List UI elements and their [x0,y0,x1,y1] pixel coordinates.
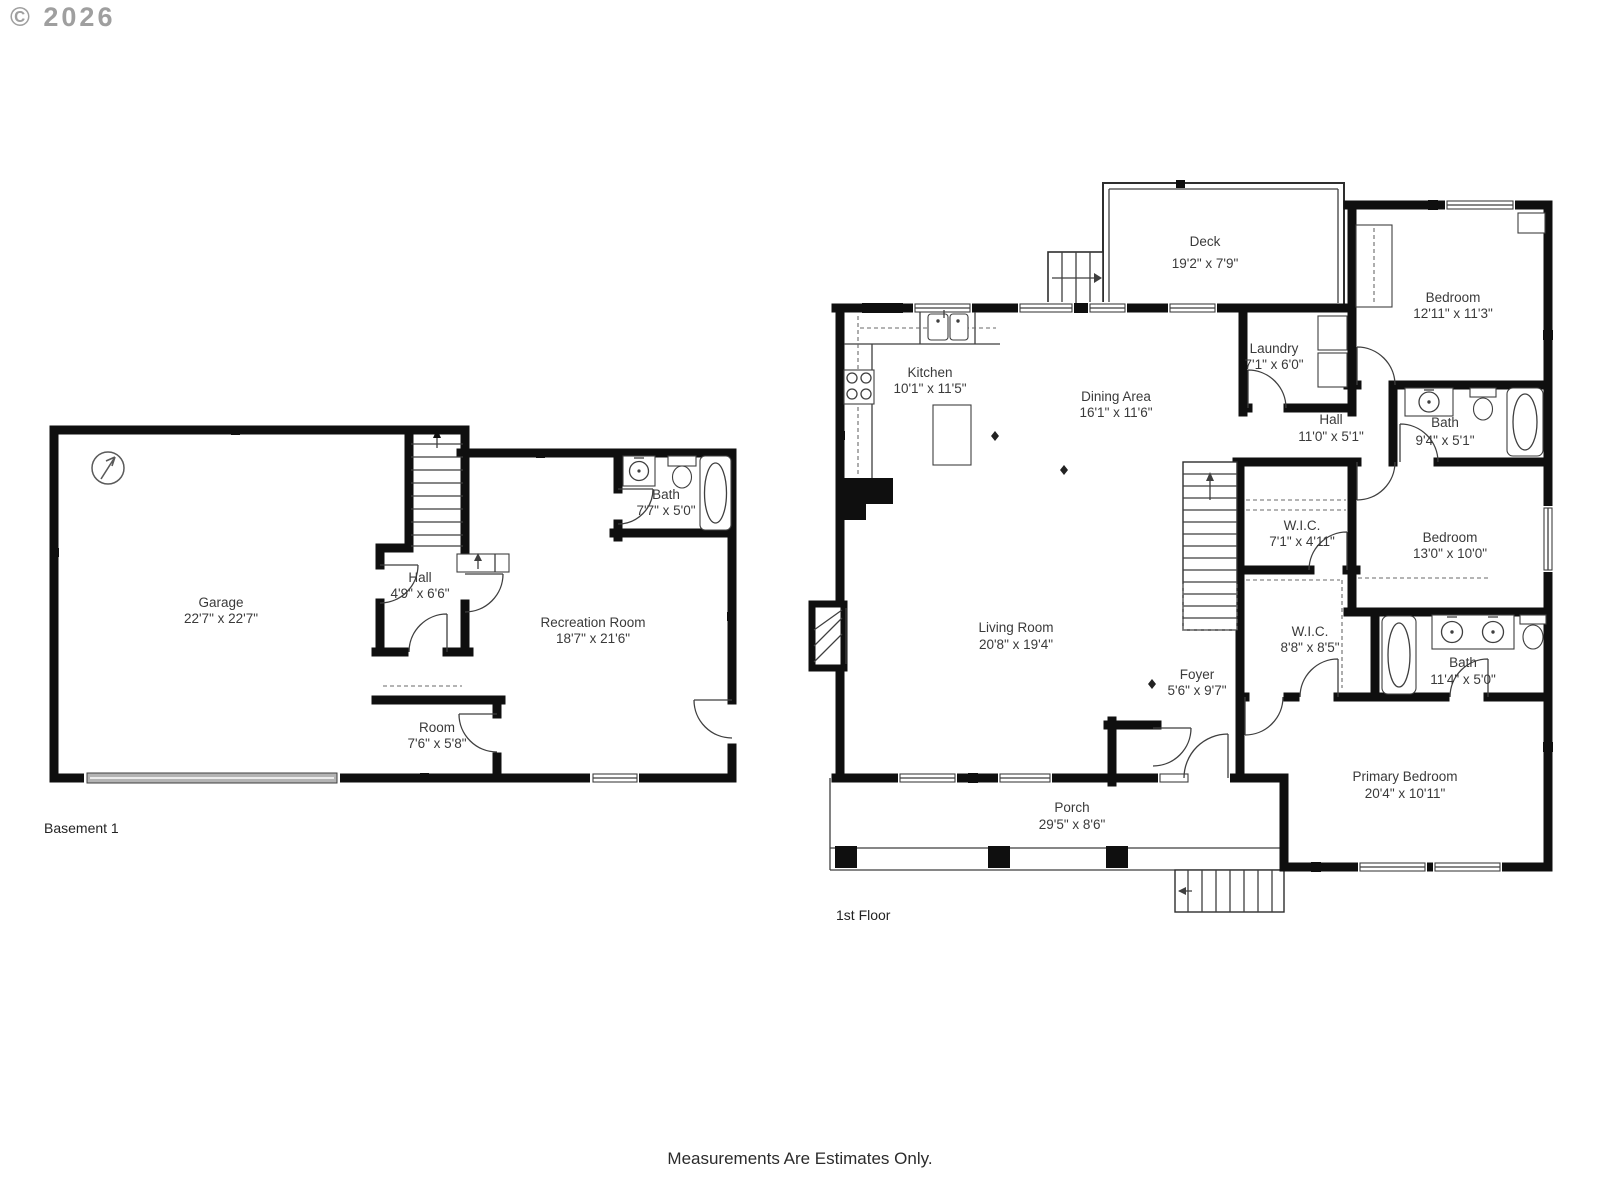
room-label-laundry: Laundry [1250,341,1299,356]
room-dims-laundry: 7'1" x 6'0" [1244,357,1303,372]
toilet-icon [1520,615,1546,624]
room-dims-dining: 16'1" x 11'6" [1079,405,1152,420]
room-dims-living: 20'8" x 19'4" [979,637,1053,652]
window [913,302,972,314]
room-dims-porch: 29'5" x 8'6" [1039,817,1106,832]
room-label-room: Room [419,720,455,735]
basement-stairs-icon [411,429,463,546]
first-floor-plan: Deck 19'2" x 7'9" Kitchen 10'1" x 11'5" … [812,180,1554,912]
bathtub-icon [1382,616,1416,694]
room-label-living: Living Room [978,620,1053,635]
room-dims-kitchen: 10'1" x 11'5" [893,381,966,396]
deck-outline [1103,180,1344,306]
toilet-icon [1470,388,1496,397]
room-dims-room: 7'6" x 5'8" [407,736,466,751]
window [1445,199,1515,211]
room-dims-bath1: 9'4" x 5'1" [1415,433,1474,448]
room-label-foyer: Foyer [1180,667,1215,682]
room-label-wic1: W.I.C. [1284,518,1321,533]
deck-stairs-icon [1048,252,1103,304]
kitchen-fixtures [840,310,1000,520]
window [1358,861,1427,873]
disclaimer-text: Measurements Are Estimates Only. [0,1149,1600,1169]
step-box-icon [457,553,509,572]
window [1433,861,1502,873]
room-label-bedroom2: Bedroom [1423,530,1478,545]
garage-door [84,771,340,785]
window [1168,302,1217,314]
porch-posts [835,846,1128,868]
room-label-garage: Garage [198,595,243,610]
room-label-bedroom1: Bedroom [1426,290,1481,305]
room-dims-garage: 22'7" x 22'7" [184,611,258,626]
room-label-hall: Hall [1319,412,1342,427]
room-dims-bath2: 11'4" x 5'0" [1430,672,1496,687]
room-dims-deck: 19'2" x 7'9" [1172,256,1239,271]
room-dims-wic2: 8'8" x 8'5" [1280,640,1339,655]
main-stairs-icon [1183,462,1237,630]
window [1018,302,1074,314]
room-label-recreation: Recreation Room [540,615,645,630]
room-label-bath2: Bath [1449,655,1477,670]
washer-dryer-icon [1318,316,1347,387]
basement-caption: Basement 1 [44,820,119,836]
room-dims-hall-basement: 4'9" x 6'6" [390,586,449,601]
room-dims-wic1: 7'1" x 4'11" [1269,534,1335,549]
room-dims-bedroom1: 12'11" x 11'3" [1413,306,1493,321]
room-label-deck: Deck [1190,234,1221,249]
room-label-kitchen: Kitchen [907,365,952,380]
kitchen-island [933,405,971,465]
basement-window [590,771,639,785]
window [1088,302,1127,314]
room-dims-primary: 20'4" x 10'11" [1365,786,1446,801]
room-dims-foyer: 5'6" x 9'7" [1167,683,1226,698]
stove-icon [844,370,874,404]
toilet-icon [668,456,696,466]
room-label-hall-basement: Hall [408,570,431,585]
kitchen-sink-icon [928,310,968,340]
window [998,772,1052,784]
room-dims-bath-basement: 7'7" x 5'0" [636,503,695,518]
room-label-bath1: Bath [1431,415,1459,430]
room-dims-bedroom2: 13'0" x 10'0" [1413,546,1487,561]
room-label-primary: Primary Bedroom [1352,769,1457,784]
room-label-wic2: W.I.C. [1292,624,1329,639]
room-dims-hall: 11'0" x 5'1" [1298,429,1364,444]
window [898,772,957,784]
porch-stairs-icon [1175,870,1284,912]
room-dims-recreation: 18'7" x 21'6" [556,631,630,646]
room-label-bath-basement: Bath [652,487,680,502]
double-sink-icon [1432,615,1514,649]
floorplan-canvas: Garage 22'7" x 22'7" Hall 4'9" x 6'6" Ba… [0,0,1600,1200]
fireplace-icon [812,604,846,668]
basement-plan: Garage 22'7" x 22'7" Hall 4'9" x 6'6" Ba… [50,426,736,785]
window [1542,506,1554,572]
room-label-dining: Dining Area [1081,389,1151,404]
floorplan-page: © 2026 [0,0,1600,1200]
first-floor-caption: 1st Floor [836,907,890,923]
front-door [1158,734,1230,785]
room-label-porch: Porch [1054,800,1089,815]
compass-icon [92,452,124,484]
